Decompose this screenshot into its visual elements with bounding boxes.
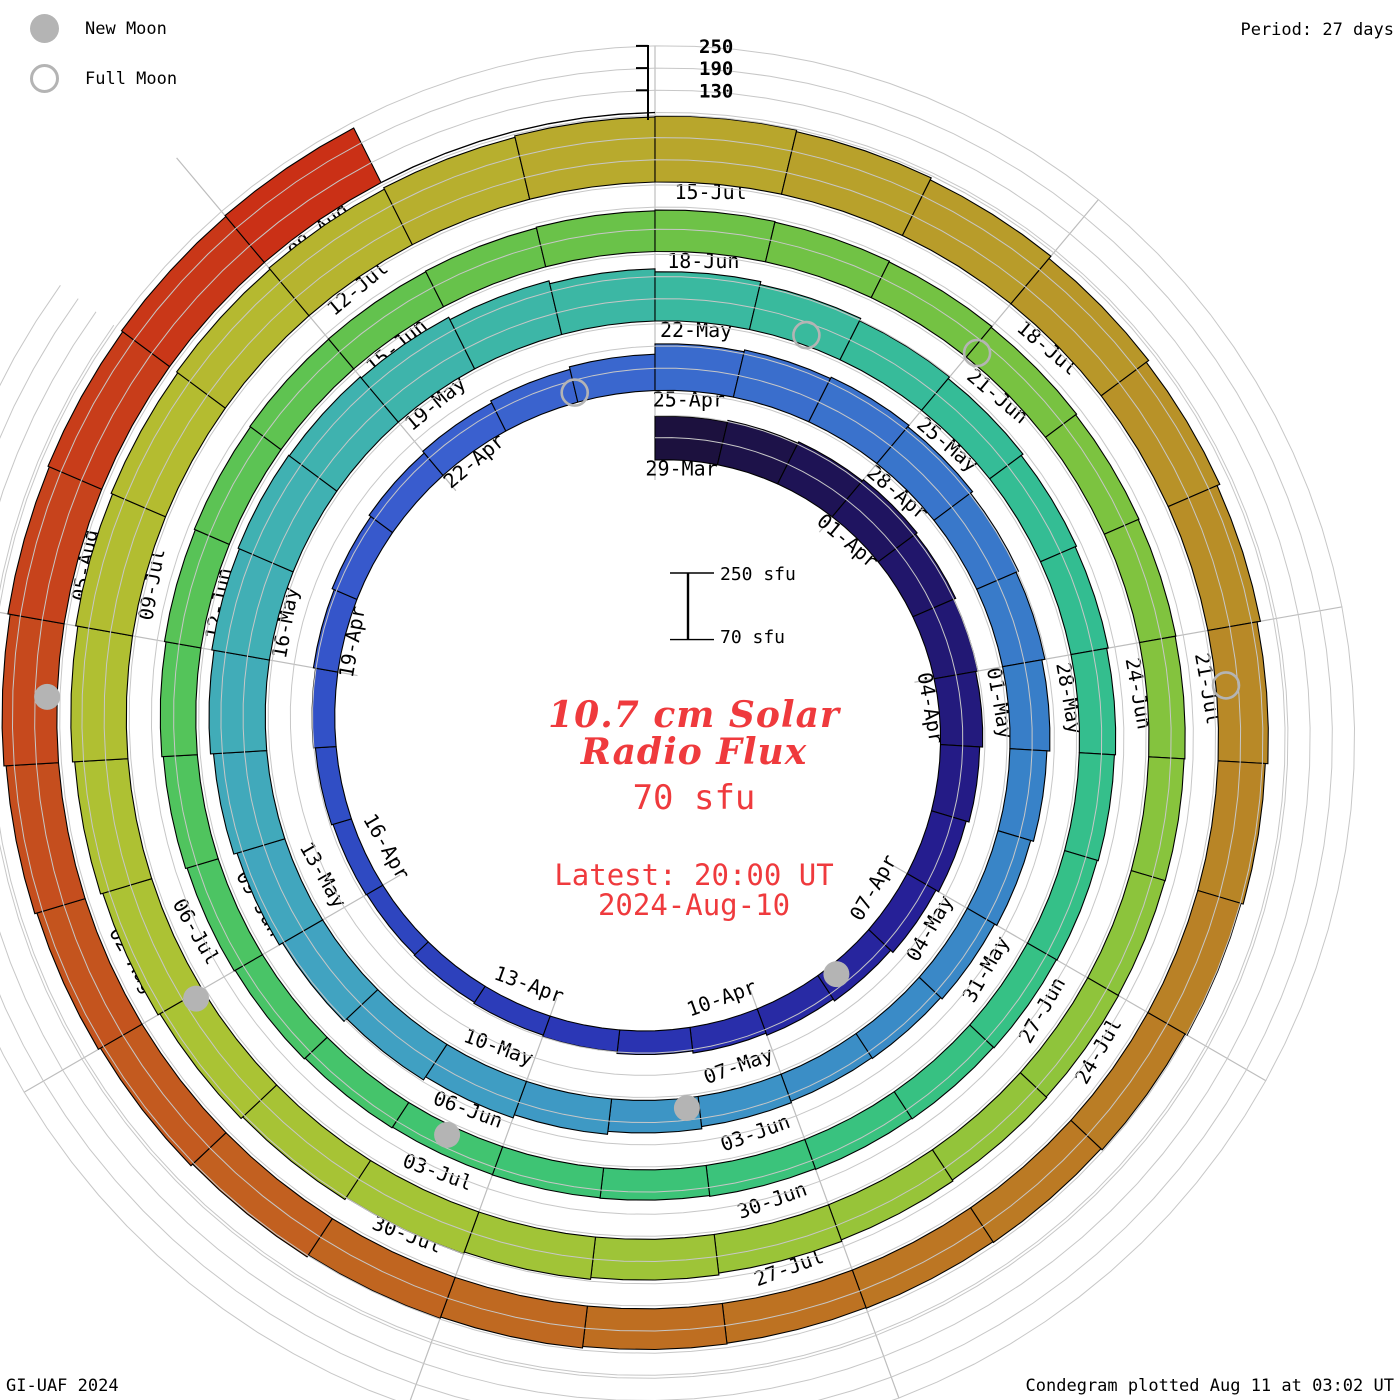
plotted-time-label: Condegram plotted Aug 11 at 03:02 UT (1026, 1376, 1394, 1396)
daily-flux-bar (414, 942, 485, 1003)
daily-flux-bar (369, 453, 443, 533)
scale-top-label: 250 sfu (720, 564, 796, 585)
new-moon-label: New Moon (85, 19, 167, 39)
daily-flux-bar (160, 642, 201, 757)
daily-flux-bar (766, 222, 890, 297)
latest-time-label: Latest: 20:00 UT (554, 858, 833, 892)
daily-flux-bar (781, 1034, 872, 1102)
daily-flux-bar (856, 977, 941, 1058)
daily-flux-bar (805, 1092, 912, 1170)
daily-flux-bar (829, 1150, 953, 1240)
daily-flux-bar (209, 650, 269, 754)
daily-flux-bar (894, 1025, 993, 1119)
daily-flux-bar (583, 1304, 727, 1350)
daily-flux-bar (1071, 648, 1116, 755)
flux-axis-tick-label: 190 (699, 58, 733, 80)
daily-flux-bar (1028, 851, 1098, 961)
new-moon-marker (674, 1095, 700, 1121)
daily-flux-bar (6, 763, 85, 914)
daily-flux-bar (934, 672, 983, 748)
scale-bar (670, 573, 714, 640)
full-moon-label: Full Moon (85, 69, 177, 89)
daily-flux-bar (722, 1270, 866, 1343)
flux-axis-tick-label: 250 (699, 36, 733, 58)
daily-flux-bar (1168, 486, 1260, 631)
new-moon-icon (30, 14, 59, 43)
daily-flux-bar (655, 116, 797, 194)
daily-flux-bar (591, 1235, 719, 1281)
daily-flux-bar (75, 759, 152, 894)
new-moon-marker (34, 684, 60, 710)
daily-flux-bar (782, 132, 932, 236)
daily-flux-bar (441, 1277, 588, 1348)
new-moon-marker (434, 1122, 460, 1148)
daily-flux-bar (315, 747, 351, 825)
daily-flux-bar (1065, 753, 1115, 861)
daily-flux-bar (655, 416, 728, 465)
flux-axis-tick-label: 130 (699, 80, 733, 102)
daily-flux-bar (1041, 547, 1109, 655)
daily-flux-bar (543, 1016, 620, 1052)
legend-new-moon: New Moon (30, 14, 167, 43)
daily-flux-bar (464, 1212, 595, 1279)
daily-flux-bar (163, 755, 218, 869)
condegram-page: 29-Mar01-Apr04-Apr07-Apr10-Apr13-Apr16-A… (0, 0, 1400, 1400)
new-moon-marker (823, 961, 849, 987)
daily-flux-bar (977, 572, 1045, 667)
new-moon-marker (183, 986, 209, 1012)
daily-flux-bar (312, 668, 338, 748)
daily-flux-bar (1104, 520, 1176, 643)
daily-flux-bar (1148, 891, 1241, 1036)
period-label: Period: 27 days (1240, 20, 1394, 40)
daily-flux-bar (600, 1166, 710, 1201)
latest-date-label: 2024-Aug-10 (598, 888, 790, 922)
full-moon-icon (30, 64, 59, 93)
chart-title-line1: 10.7 cm Solar (548, 694, 840, 736)
daily-flux-bar (932, 745, 980, 822)
daily-flux-bar (384, 137, 530, 244)
chart-title-line2: Radio Flux (581, 731, 807, 773)
legend-full-moon: Full Moon (30, 64, 177, 93)
latest-flux-value: 70 sfu (633, 778, 756, 818)
scale-bottom-label: 70 sfu (720, 627, 785, 648)
daily-flux-bar (71, 626, 133, 762)
daily-flux-bar (967, 831, 1030, 926)
daily-flux-bar (367, 885, 428, 954)
flux-axis: 250190130 (636, 36, 733, 120)
credit-label: GI-UAF 2024 (6, 1376, 119, 1396)
daily-flux-bar (332, 517, 392, 600)
daily-flux-bar (998, 749, 1047, 842)
daily-flux-bar (514, 1081, 611, 1134)
